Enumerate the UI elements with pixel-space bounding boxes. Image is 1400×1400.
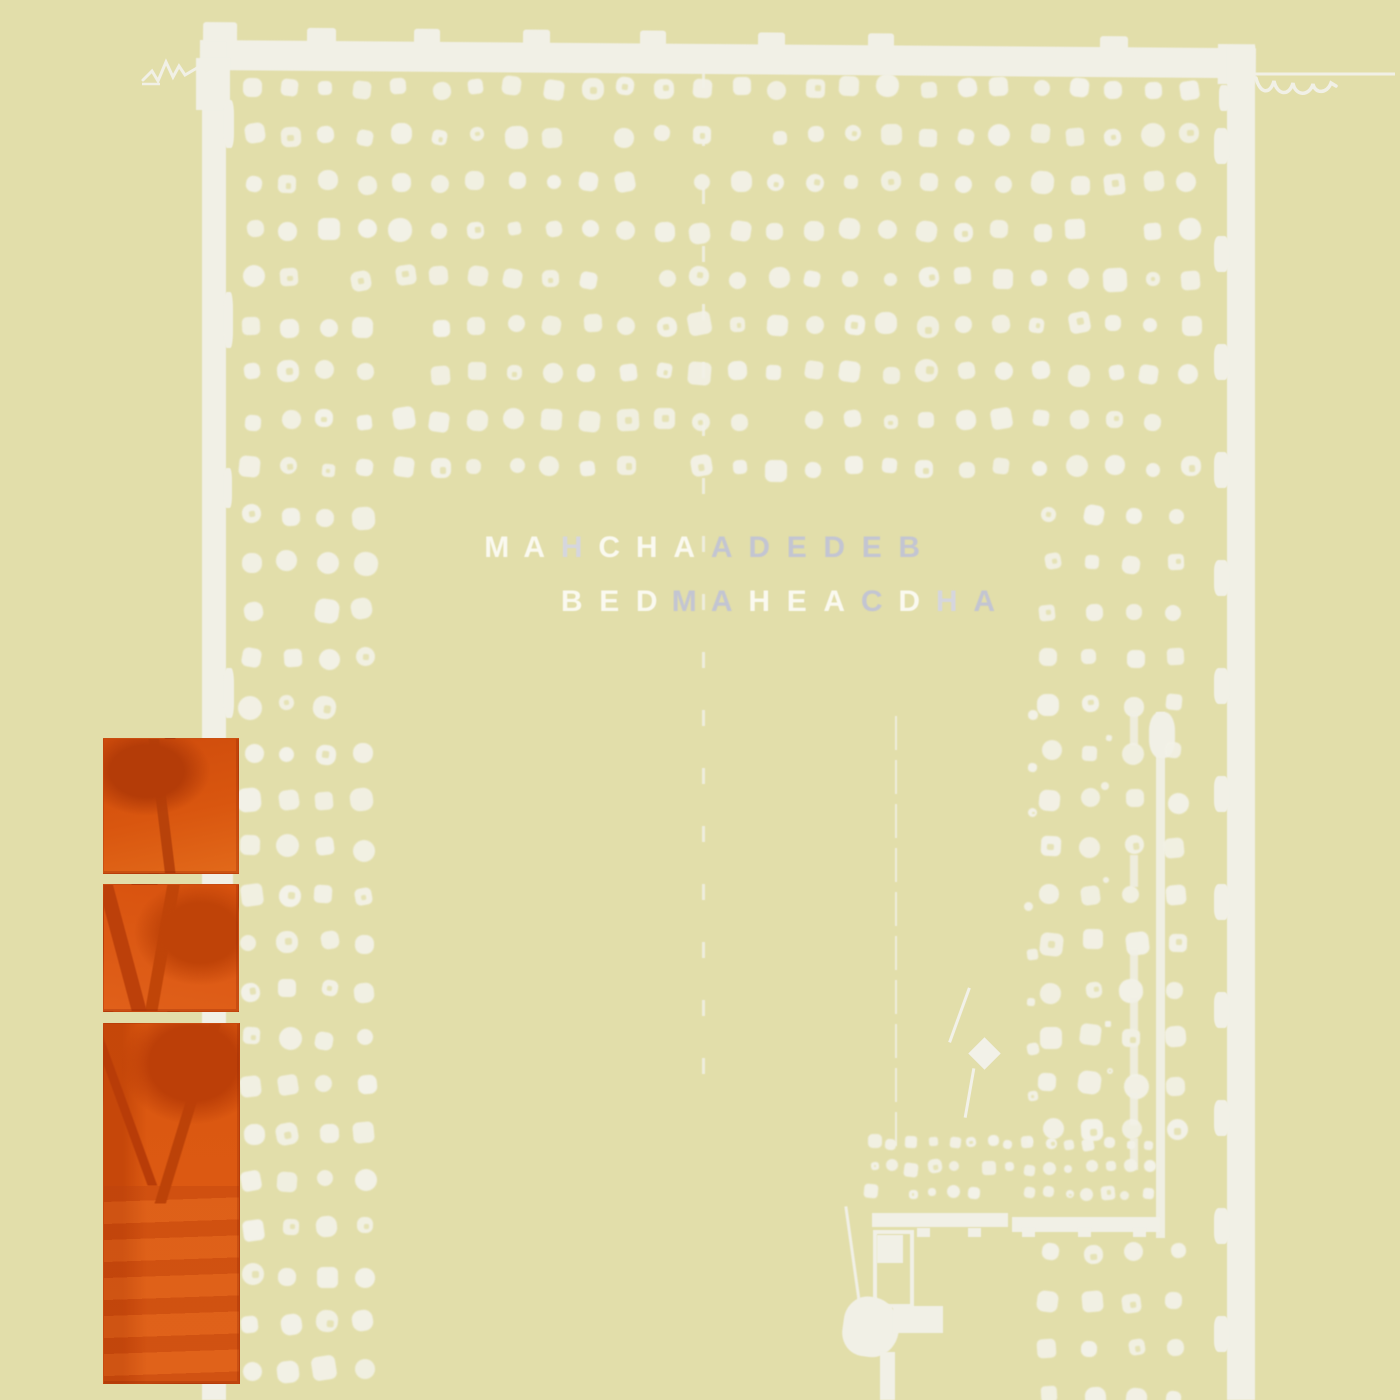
halftone-dot (504, 126, 528, 150)
halftone-dot (242, 1026, 260, 1044)
mini-band-dot (982, 1161, 996, 1175)
halftone-dot (393, 456, 415, 478)
rail-foot (1078, 1228, 1091, 1237)
dot-notch (925, 326, 932, 333)
dot-notch (625, 416, 632, 423)
right-frame-bar-tab (1214, 884, 1229, 920)
mini-band-dot (868, 1134, 882, 1148)
mini-band-dot (988, 1135, 999, 1146)
halftone-dot (320, 979, 339, 998)
title-letter: E (778, 531, 816, 565)
halftone-dot (243, 362, 260, 379)
halftone-dot (1179, 123, 1200, 144)
dot-notch (361, 894, 367, 900)
halftone-dot (766, 314, 788, 336)
satellite-dot (1107, 1068, 1113, 1074)
mini-band-dot (1104, 1137, 1116, 1149)
halftone-dot (806, 78, 825, 97)
halftone-dot (884, 415, 898, 429)
halftone-dot (240, 982, 262, 1004)
halftone-dot (1127, 650, 1145, 668)
halftone-dot (1106, 411, 1123, 428)
halftone-dot (881, 124, 902, 145)
halftone-dot (278, 175, 296, 193)
halftone-dot (768, 266, 791, 289)
dot-notch (912, 1193, 915, 1196)
halftone-dot (356, 1028, 374, 1046)
halftone-dot (838, 359, 861, 382)
halftone-dot (314, 408, 333, 427)
halftone-dot (321, 464, 335, 478)
halftone-dot (582, 78, 604, 100)
dot-notch (590, 87, 597, 94)
halftone-dot (1165, 1390, 1182, 1400)
halftone-dot (433, 319, 451, 337)
dot-notch (1046, 609, 1052, 615)
halftone-dot (1065, 454, 1089, 478)
halftone-dot (803, 269, 822, 288)
halftone-dot (316, 1168, 335, 1187)
dot-notch (929, 274, 937, 282)
halftone-dot (315, 836, 335, 856)
halftone-dot (1031, 360, 1051, 380)
dot-notch (1051, 1141, 1055, 1145)
halftone-dot (993, 269, 1013, 289)
halftone-dot (1078, 1023, 1101, 1046)
halftone-dot (614, 76, 635, 97)
halftone-dot (394, 264, 416, 286)
halftone-dot (691, 412, 712, 433)
crenellation-bump (758, 32, 785, 47)
halftone-dot (728, 271, 748, 291)
dot-notch (288, 892, 296, 900)
halftone-dot (466, 264, 489, 287)
halftone-dot (538, 454, 560, 476)
halftone-dot (654, 408, 675, 429)
dot-notch (1046, 512, 1052, 518)
halftone-dot (658, 269, 677, 288)
title-letter: D (628, 585, 666, 619)
mini-band-dot (967, 1186, 980, 1199)
halftone-dot (356, 362, 375, 381)
halftone-dot (281, 126, 302, 147)
halftone-dot (917, 316, 939, 338)
right-frame-bar-tab (1219, 85, 1229, 111)
title-letter: M (478, 531, 516, 565)
title-letter: E (591, 585, 629, 619)
title-letter: A (966, 585, 1004, 619)
halftone-dot (510, 458, 525, 473)
halftone-dot (953, 266, 971, 284)
halftone-dot (1068, 364, 1091, 387)
rail-foot (1133, 1228, 1146, 1237)
halftone-dot (1037, 1073, 1056, 1092)
halftone-dot (541, 315, 563, 337)
halftone-dot (1180, 456, 1201, 477)
satellite-dot (1028, 808, 1038, 818)
halftone-dot (578, 410, 601, 433)
halftone-dot (466, 458, 482, 474)
dot-notch (851, 322, 858, 329)
halftone-dot (279, 318, 299, 338)
halftone-dot (353, 982, 375, 1004)
satellite-dot (1027, 1090, 1038, 1101)
halftone-dot (733, 77, 751, 95)
halftone-dot (653, 124, 671, 142)
halftone-dot (1031, 460, 1047, 476)
dot-notch (326, 1319, 334, 1327)
satellite-dot (1027, 998, 1035, 1006)
halftone-dot (1140, 121, 1167, 148)
right-frame-bar-tab (1214, 344, 1229, 380)
halftone-dot (314, 885, 334, 905)
right-frame-bar-tab (1214, 560, 1229, 596)
mini-band-dot (947, 1184, 960, 1197)
halftone-dot (1103, 173, 1126, 196)
dot-notch (320, 416, 326, 422)
dot-notch (1130, 1036, 1136, 1042)
halftone-dot (838, 217, 861, 240)
halftone-dot (430, 365, 450, 385)
right-frame-bar-tab (1214, 668, 1229, 704)
dot-connector (1130, 998, 1138, 1030)
left-frame-bar-tab (224, 100, 234, 148)
halftone-dot (241, 1361, 263, 1383)
halftone-dot (1104, 80, 1123, 99)
dot-notch (1133, 843, 1140, 850)
dot-notch (924, 469, 930, 475)
halftone-dot (277, 359, 300, 382)
halftone-dot (274, 1121, 299, 1146)
orange-tree-panel-3 (103, 1023, 240, 1384)
dot-notch (851, 130, 857, 136)
dot-connector (1130, 855, 1138, 887)
dot-notch (621, 83, 628, 90)
dot-notch (662, 415, 669, 422)
dot-notch (1031, 1095, 1035, 1099)
halftone-dot (467, 78, 484, 95)
halftone-dot (509, 172, 526, 189)
halftone-dot (1124, 834, 1146, 856)
halftone-dot (843, 175, 858, 190)
crenellation-bump (307, 28, 336, 44)
halftone-dot (316, 1215, 339, 1238)
halftone-dot (243, 1124, 265, 1146)
halftone-dot (317, 1266, 338, 1287)
halftone-dot (507, 364, 522, 379)
mini-band-dot (1024, 1165, 1036, 1177)
halftone-dot (242, 1263, 264, 1285)
halftone-dot (352, 550, 380, 578)
dot-notch (889, 421, 894, 426)
halftone-dot (279, 456, 297, 474)
halftone-dot (877, 219, 898, 240)
halftone-dot (467, 362, 485, 380)
dot-notch (1106, 1191, 1111, 1196)
halftone-dot (430, 221, 449, 240)
halftone-dot (1039, 884, 1060, 905)
left-frame-bar-tab (224, 668, 234, 718)
halftone-dot (995, 175, 1014, 194)
halftone-dot (731, 171, 752, 192)
crenellation-bump (414, 29, 440, 45)
halftone-dot (246, 219, 265, 238)
halftone-dot (1069, 409, 1090, 430)
machine-arm (893, 1306, 943, 1333)
halftone-dot (276, 1171, 298, 1193)
halftone-dot (242, 552, 262, 572)
dot-notch (873, 1164, 876, 1167)
title-letter: A (703, 585, 741, 619)
halftone-dot (465, 171, 485, 191)
halftone-dot (467, 221, 486, 240)
halftone-dot (1127, 1337, 1146, 1356)
halftone-dot (655, 316, 677, 338)
halftone-dot (278, 979, 296, 997)
halftone-dot (278, 884, 302, 908)
dot-notch (1047, 940, 1055, 948)
halftone-dot (577, 171, 598, 192)
dot-notch (287, 134, 294, 141)
halftone-dot (245, 415, 263, 433)
mini-band-dot (1065, 1190, 1074, 1199)
dot-connector (1130, 1045, 1138, 1077)
halftone-dot (541, 269, 559, 287)
halftone-dot (240, 1316, 259, 1335)
title-letter: B (891, 531, 929, 565)
halftone-dot (613, 170, 636, 193)
halftone-dot (541, 127, 562, 148)
halftone-dot (1108, 364, 1125, 381)
title-letter: A (816, 585, 854, 619)
dot-notch (1176, 559, 1181, 564)
halftone-dot (354, 935, 374, 955)
halftone-dot (1086, 604, 1104, 622)
title-line-2: BEDMAHEACDHA (553, 585, 1003, 619)
dot-notch (1090, 1254, 1097, 1261)
halftone-dot (245, 175, 264, 194)
dot-notch (815, 84, 821, 90)
mini-band-dot (884, 1138, 896, 1150)
satellite-dot (1105, 734, 1112, 741)
halftone-dot (1126, 789, 1144, 807)
halftone-dot (1041, 835, 1062, 856)
halftone-dot (986, 123, 1010, 147)
mini-band-dot (1005, 1161, 1014, 1170)
halftone-dot (318, 218, 340, 240)
mini-band-dot (1064, 1165, 1072, 1173)
halftone-dot (1044, 552, 1062, 570)
mini-band-dot (1042, 1162, 1057, 1177)
halftone-dot (1081, 695, 1100, 714)
dot-notch (1174, 1128, 1181, 1135)
halftone-dot (884, 272, 899, 287)
halftone-dot (766, 173, 786, 193)
halftone-dot (686, 310, 712, 336)
halftone-dot (546, 174, 562, 190)
halftone-dot (316, 1309, 339, 1332)
halftone-dot (1182, 316, 1202, 336)
scribble-right-icon (1250, 64, 1400, 108)
mini-band-dot (927, 1158, 943, 1174)
dot-notch (284, 700, 290, 706)
halftone-dot (240, 935, 257, 952)
dot-connector (1130, 713, 1138, 745)
title-letter: H (928, 585, 966, 619)
halftone-dot (883, 366, 901, 384)
halftone-dot (1079, 885, 1100, 906)
halftone-dot (1166, 981, 1184, 999)
halftone-dot (1039, 932, 1065, 958)
mini-band-dot (1142, 1188, 1154, 1200)
halftone-dot (804, 360, 825, 381)
satellite-dot (1027, 763, 1037, 773)
halftone-dot (432, 80, 453, 101)
halftone-dot (1177, 216, 1202, 241)
halftone-dot (729, 317, 745, 333)
halftone-dot (352, 743, 373, 764)
halftone-dot (278, 222, 298, 242)
top-frame-band (200, 40, 1256, 78)
dot-notch (1135, 1345, 1141, 1351)
dot-notch (736, 323, 741, 328)
dot-notch (285, 937, 292, 944)
halftone-dot (1165, 1291, 1183, 1309)
halftone-dot (430, 174, 450, 194)
dot-notch (1111, 134, 1117, 140)
mini-band-dot (966, 1137, 977, 1148)
halftone-dot (1038, 604, 1055, 621)
halftone-dot (1082, 746, 1097, 761)
halftone-dot (279, 268, 298, 287)
halftone-dot (315, 550, 340, 575)
halftone-dot (1032, 409, 1050, 427)
halftone-dot (804, 410, 824, 430)
title-line-1: MAHCHAADEDEB (478, 531, 928, 565)
halftone-dot (955, 175, 973, 193)
mid-thin-line (895, 716, 897, 1146)
dot-notch (1151, 276, 1156, 281)
halftone-dot (500, 75, 522, 97)
halftone-dot (579, 460, 596, 477)
halftone-dot (466, 317, 484, 335)
dot-notch (248, 510, 255, 517)
halftone-dot (1165, 884, 1187, 906)
dot-notch (814, 179, 821, 186)
halftone-dot (1166, 1119, 1187, 1140)
halftone-dot (914, 220, 938, 244)
halftone-dot (356, 646, 376, 666)
halftone-dot (844, 124, 863, 143)
halftone-dot (1071, 176, 1090, 195)
mini-band-dot (863, 1184, 878, 1199)
mini-band-dot (1021, 1136, 1033, 1148)
mini-band-dot (1045, 1137, 1058, 1150)
halftone-dot (278, 1267, 297, 1286)
dot-notch (1176, 939, 1182, 945)
dot-notch (926, 367, 934, 375)
halftone-dot (990, 220, 1009, 239)
halftone-dot (431, 128, 449, 146)
halftone-dot (766, 80, 786, 100)
halftone-dot (349, 787, 375, 813)
satellite-dot (1024, 902, 1033, 911)
halftone-dot (1036, 1290, 1060, 1314)
halftone-dot (1081, 649, 1096, 664)
halftone-dot (616, 316, 637, 337)
crenellation-bump (1100, 36, 1128, 50)
halftone-dot (958, 462, 975, 479)
halftone-dot (314, 1074, 334, 1094)
mini-band-dot (1144, 1159, 1156, 1171)
halftone-dot (1041, 739, 1063, 761)
halftone-dot (844, 314, 866, 336)
halftone-dot (803, 221, 823, 241)
dot-notch (1187, 129, 1194, 136)
title-letter: M (666, 585, 704, 619)
halftone-dot (1146, 272, 1161, 287)
halftone-dot (1122, 886, 1139, 903)
mini-band-dot (1023, 1186, 1036, 1199)
halftone-dot (843, 409, 863, 429)
scratch-line (844, 1206, 860, 1301)
halftone-dot (693, 173, 711, 191)
halftone-dot (241, 264, 266, 289)
mini-band-dot (949, 1136, 961, 1148)
halftone-dot (280, 78, 299, 97)
halftone-dot (1166, 1338, 1185, 1357)
halftone-dot (507, 221, 522, 236)
title-letter: C (853, 585, 891, 619)
halftone-dot (1083, 929, 1103, 949)
dot-notch (888, 179, 895, 186)
dot-notch (970, 1141, 974, 1145)
halftone-dot (839, 76, 860, 97)
halftone-dot (953, 222, 973, 242)
halftone-dot (351, 506, 375, 530)
right-frame-bar-tab (1214, 1208, 1229, 1244)
title-letter: A (516, 531, 554, 565)
halftone-dot (357, 1217, 374, 1234)
halftone-dot (541, 409, 563, 431)
halftone-dot (1104, 455, 1125, 476)
dot-notch (289, 1224, 294, 1229)
kite-diamond (968, 1037, 1001, 1070)
halftone-dot (356, 175, 377, 196)
halftone-dot (1142, 317, 1158, 333)
halftone-dot (275, 549, 298, 572)
halftone-dot (1078, 836, 1100, 858)
halftone-dot (805, 173, 826, 194)
halftone-dot (991, 314, 1011, 334)
halftone-dot (277, 1073, 299, 1095)
halftone-dot (617, 455, 637, 475)
mini-band-dot (1042, 1185, 1054, 1197)
halftone-dot (1175, 171, 1198, 194)
halftone-dot (688, 222, 711, 245)
mini-band-dot (1106, 1160, 1117, 1171)
halftone-dot (278, 746, 294, 762)
mini-band-dot (909, 1190, 918, 1199)
halftone-dot (466, 409, 488, 431)
halftone-dot (921, 82, 938, 99)
halftone-dot (766, 222, 783, 239)
dot-notch (1032, 812, 1035, 815)
halftone-dot (875, 73, 900, 98)
dot-notch (626, 463, 632, 469)
halftone-dot (243, 601, 264, 622)
halftone-dot (283, 648, 302, 667)
